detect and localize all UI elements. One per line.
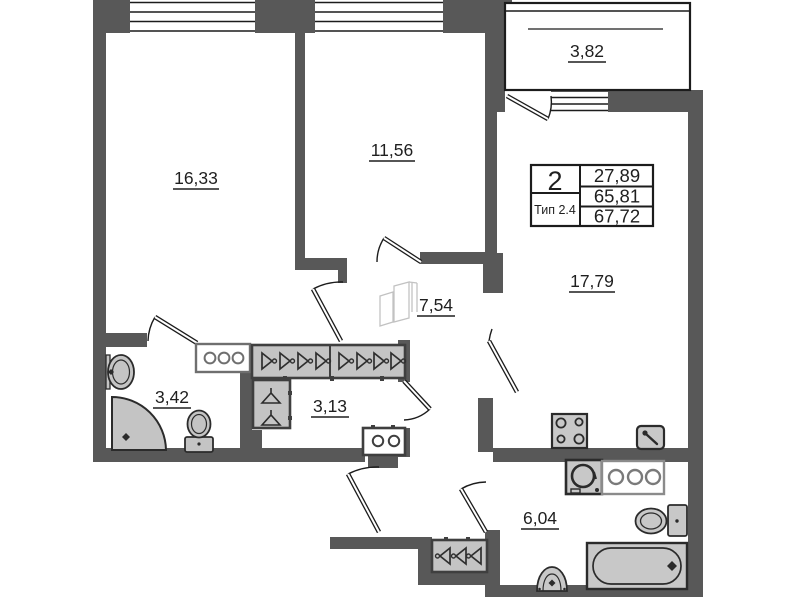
wall-segment <box>330 537 432 549</box>
bathtub-icon <box>587 543 687 589</box>
kitchen-area-label: 17,79 <box>570 271 614 291</box>
wall-segment <box>418 549 432 585</box>
wardrobe-area-label: 3,13 <box>313 396 347 416</box>
area-without-balcony: 65,81 <box>594 186 640 207</box>
window-kitchen <box>551 90 608 112</box>
hallway-area-label: 7,54 <box>419 295 453 315</box>
kitchen-sink-icon <box>637 426 664 449</box>
balcony-area-label: 3,82 <box>570 41 604 61</box>
hall-furniture-outline <box>380 282 417 326</box>
bathroom-area-label: 3,42 <box>155 387 189 407</box>
unit-info-table: 2 Тип 2.4 27,89 65,81 67,72 <box>531 165 653 227</box>
rooms-count: 2 <box>547 166 562 196</box>
toilet2-icon <box>636 505 688 536</box>
room2-area-label: 11,56 <box>371 140 414 160</box>
wall-segment <box>420 252 487 264</box>
total-area: 67,72 <box>594 206 640 227</box>
door-bathroom <box>148 317 197 343</box>
washing-machine-icon <box>566 460 602 494</box>
wall-segment <box>485 112 497 253</box>
wall-segment <box>483 253 503 293</box>
floor-plan: 16,33 11,56 3,82 7,54 17,79 3,42 3,13 6,… <box>0 0 800 600</box>
wall-segment <box>608 90 688 112</box>
door-room1-nook <box>313 282 343 341</box>
living-area: 27,89 <box>594 165 640 186</box>
toilet-icon <box>185 411 213 453</box>
hanger-wardrobe-icon <box>253 380 292 428</box>
stove-icon <box>552 414 587 448</box>
wall-segment <box>93 333 147 347</box>
wall-segment <box>295 258 347 270</box>
wall-segment <box>478 398 493 452</box>
hall-wardrobe-icon <box>432 537 487 572</box>
shoe-cabinet-icon <box>196 344 250 372</box>
bathroom2-area-label: 6,04 <box>523 508 557 528</box>
floor-plan-svg: 16,33 11,56 3,82 7,54 17,79 3,42 3,13 6,… <box>0 0 800 600</box>
sliding-wardrobe-icon <box>252 345 406 381</box>
window-room1 <box>130 0 255 33</box>
door-bathroom2 <box>461 482 486 532</box>
room1-area-label: 16,33 <box>174 168 218 188</box>
door-corridor <box>348 467 379 532</box>
wall-segment <box>295 33 305 270</box>
washbasin-icon <box>106 355 134 389</box>
door-kitchen <box>489 329 517 392</box>
wall-segment <box>338 270 347 283</box>
two-knob-unit-icon <box>363 425 405 455</box>
pedestal-sink-icon <box>537 567 567 591</box>
door-wardrobe-room <box>404 381 430 420</box>
door-balcony <box>507 96 551 119</box>
wall-segment <box>240 448 365 462</box>
wall-segment <box>688 90 703 597</box>
window-room2 <box>315 0 443 33</box>
unit-type: Тип 2.4 <box>534 203 576 217</box>
wall-segment <box>93 0 106 462</box>
door-room2 <box>377 238 421 262</box>
wall-segment <box>485 33 505 112</box>
wall-segment <box>368 455 398 468</box>
counter-icon <box>602 461 664 494</box>
